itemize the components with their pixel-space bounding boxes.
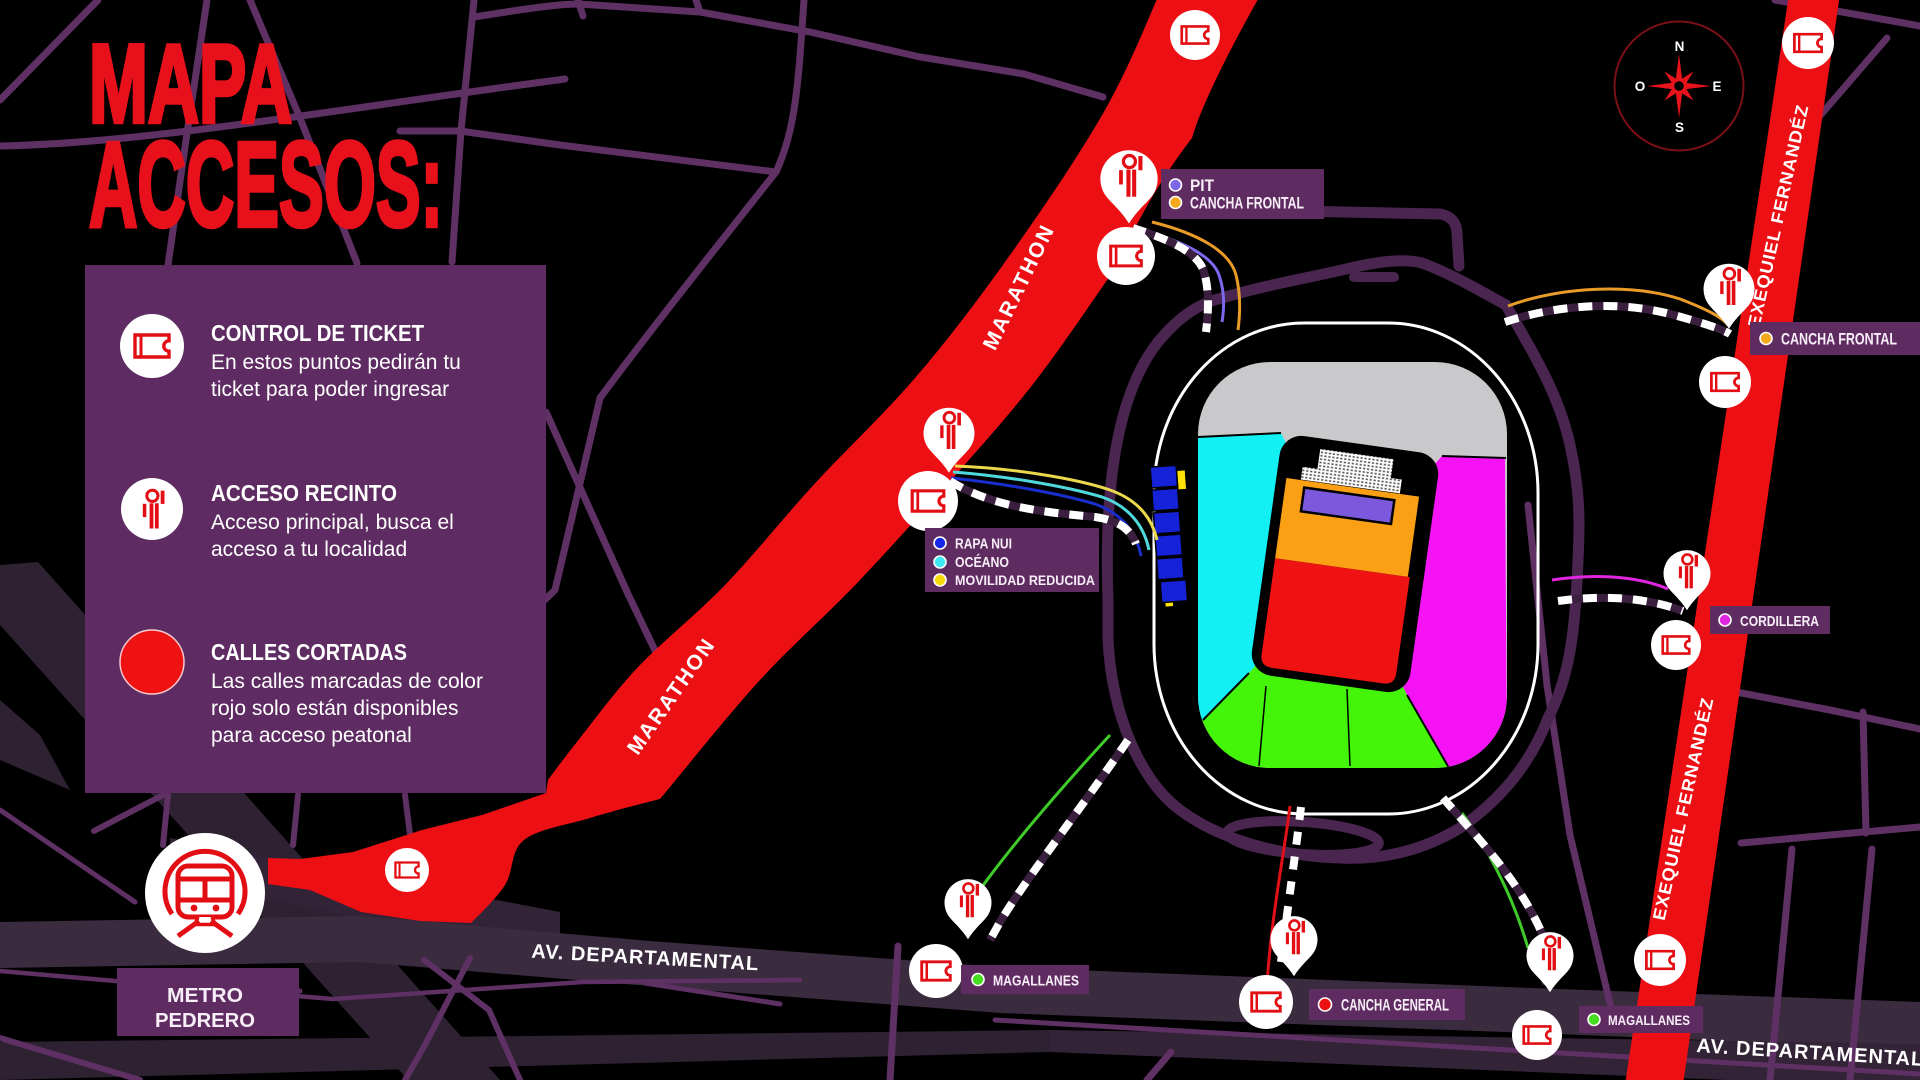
svg-text:MAGALLANES: MAGALLANES [993,973,1079,990]
svg-text:ACCESO RECINTO: ACCESO RECINTO [211,480,397,506]
svg-text:S: S [1675,120,1684,135]
svg-text:CORDILLERA: CORDILLERA [1740,613,1819,630]
svg-text:MAGALLANES: MAGALLANES [1608,1012,1690,1028]
svg-text:para acceso peatonal: para acceso peatonal [211,724,412,747]
svg-text:CONTROL DE TICKET: CONTROL DE TICKET [211,320,424,346]
svg-text:PIT: PIT [1190,176,1215,195]
svg-text:OCÉANO: OCÉANO [955,554,1009,571]
svg-text:Las calles marcadas de color: Las calles marcadas de color [211,670,483,693]
svg-text:En estos puntos pedirán tu: En estos puntos pedirán tu [211,351,461,374]
svg-text:rojo solo están disponibles: rojo solo están disponibles [211,697,459,720]
svg-text:CANCHA FRONTAL: CANCHA FRONTAL [1781,330,1897,349]
svg-text:METRO: METRO [167,985,243,1007]
svg-text:MOVILIDAD REDUCIDA: MOVILIDAD REDUCIDA [955,572,1095,588]
svg-text:N: N [1675,39,1685,54]
svg-text:CANCHA GENERAL: CANCHA GENERAL [1341,996,1449,1015]
svg-text:Acceso principal, busca el: Acceso principal, busca el [211,511,454,534]
svg-text:ACCESOS:: ACCESOS: [89,116,443,252]
svg-text:PEDRERO: PEDRERO [155,1010,255,1032]
svg-text:O: O [1635,79,1646,94]
svg-text:E: E [1712,79,1721,94]
svg-text:CANCHA FRONTAL: CANCHA FRONTAL [1190,194,1304,213]
svg-text:RAPA NUI: RAPA NUI [955,536,1012,553]
svg-text:acceso a tu localidad: acceso a tu localidad [211,538,407,561]
svg-text:CALLES CORTADAS: CALLES CORTADAS [211,639,407,665]
svg-text:ticket para poder ingresar: ticket para poder ingresar [211,378,449,401]
